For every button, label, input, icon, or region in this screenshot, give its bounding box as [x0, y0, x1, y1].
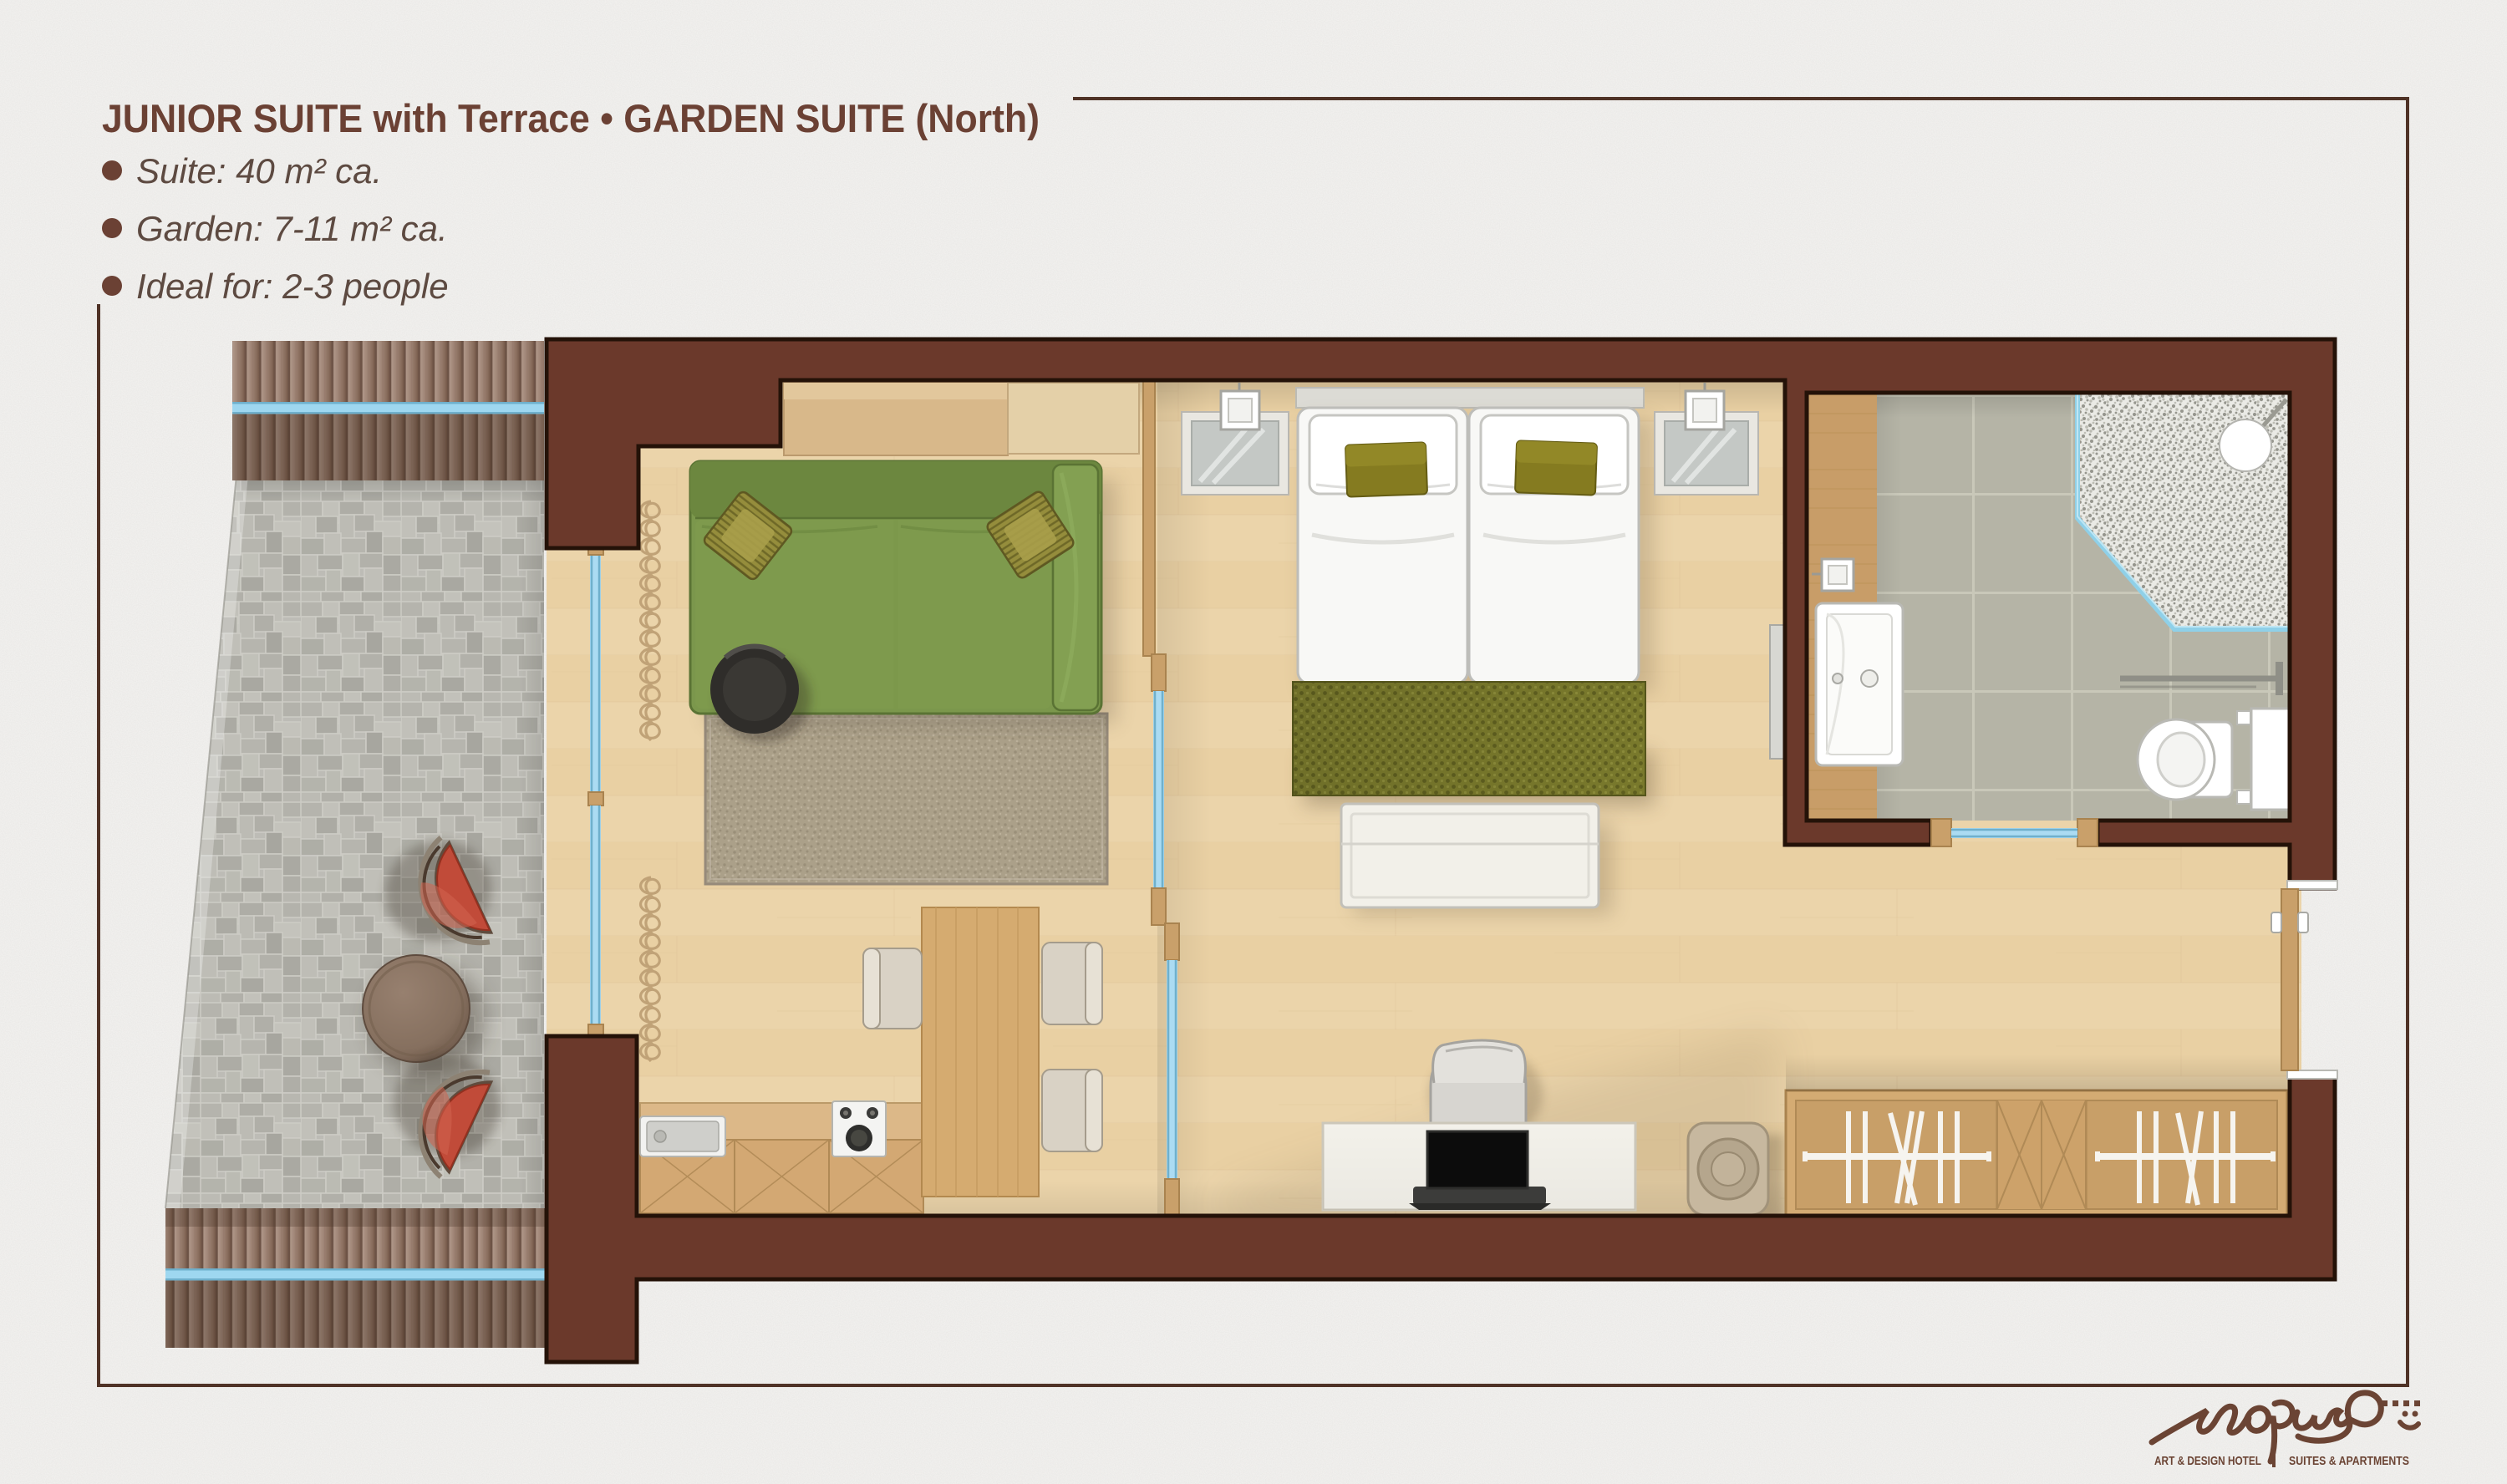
svg-text:Ideal for: 2-3 people: Ideal for: 2-3 people: [136, 267, 449, 306]
svg-text:SUITES & APARTMENTS: SUITES & APARTMENTS: [2289, 1454, 2409, 1468]
svg-text:Garden: 7-11 m² ca.: Garden: 7-11 m² ca.: [136, 209, 448, 248]
svg-text:ART & DESIGN HOTEL: ART & DESIGN HOTEL: [2154, 1454, 2261, 1468]
svg-text:Suite: 40 m² ca.: Suite: 40 m² ca.: [136, 151, 382, 191]
svg-text:JUNIOR SUITE with Terrace • GA: JUNIOR SUITE with Terrace • GARDEN SUITE…: [102, 96, 1040, 140]
